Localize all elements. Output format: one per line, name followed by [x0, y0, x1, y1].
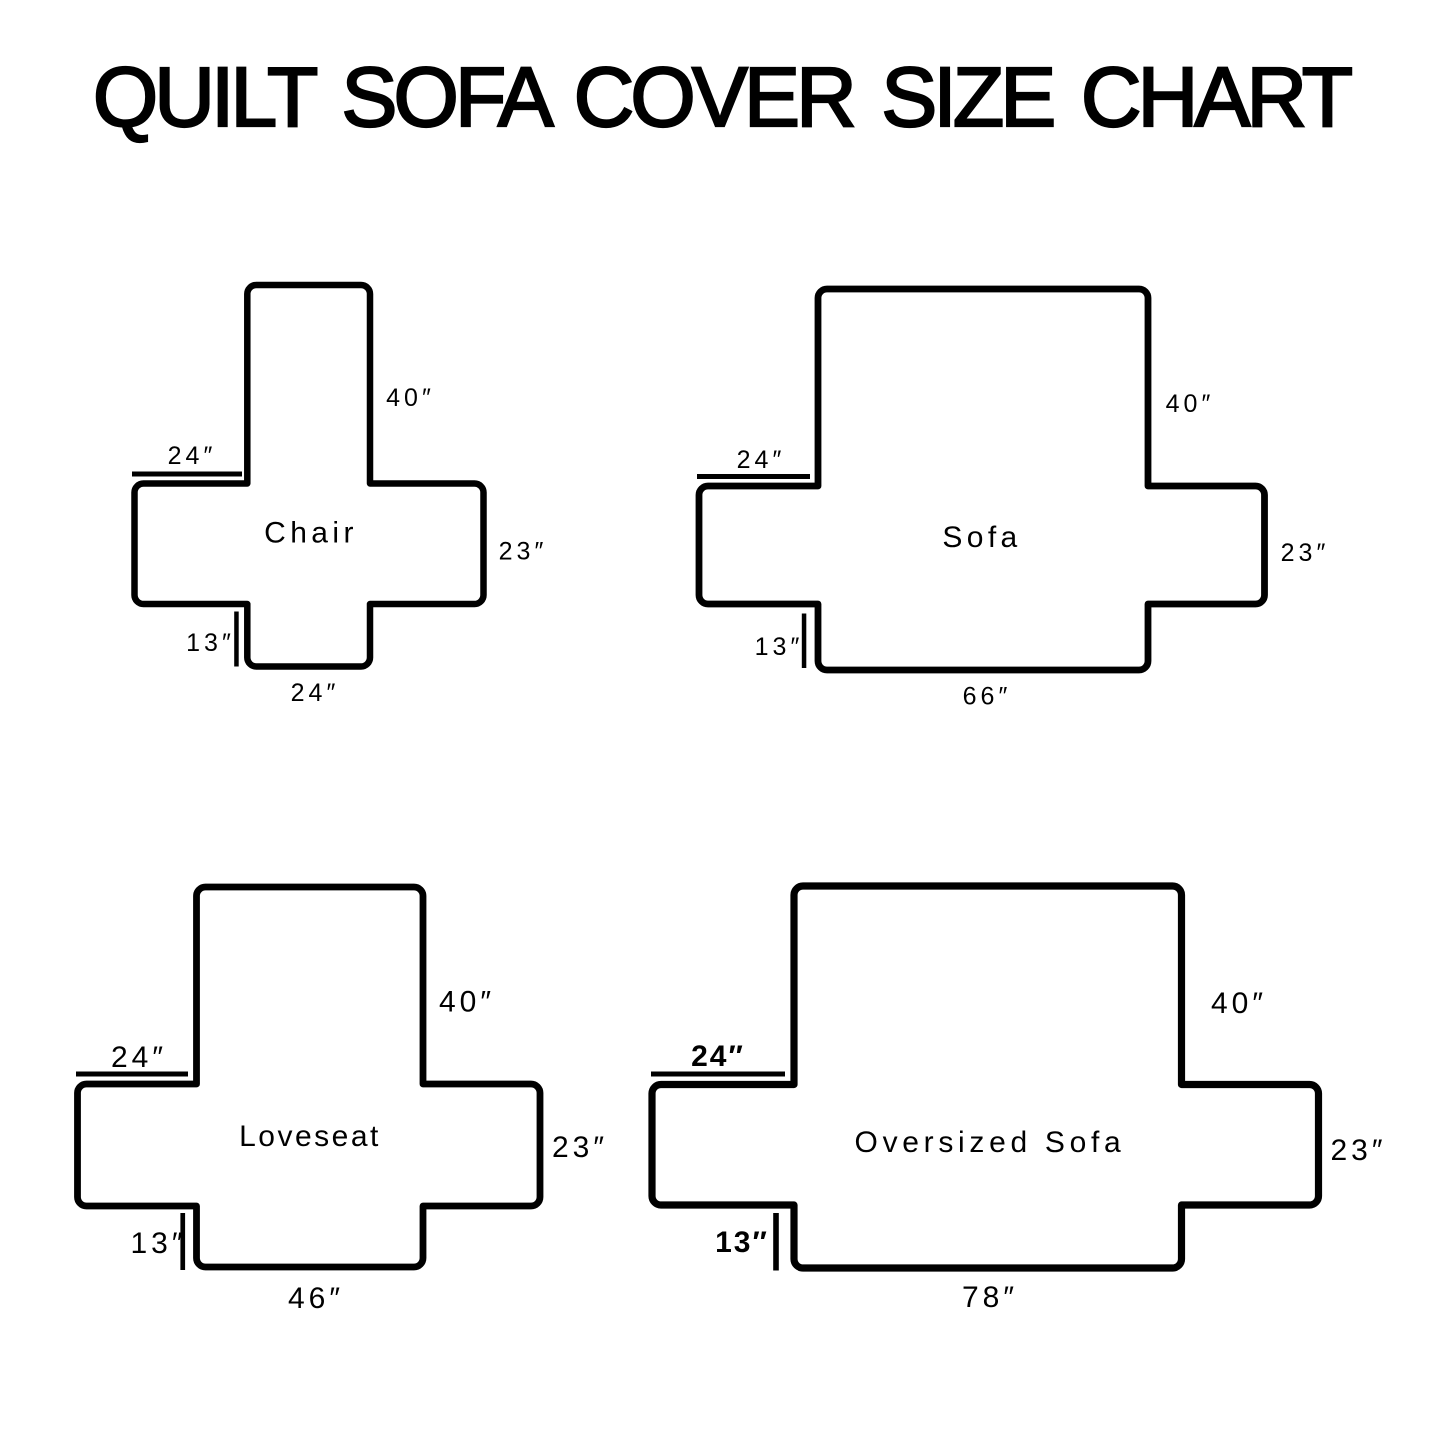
svg-text:24″: 24″ [291, 679, 340, 707]
svg-text:23″: 23″ [1331, 1134, 1387, 1167]
svg-text:24″: 24″ [737, 446, 786, 474]
svg-text:66″: 66″ [963, 683, 1012, 711]
svg-text:Loveseat: Loveseat [239, 1120, 381, 1153]
svg-text:13″: 13″ [715, 1226, 769, 1259]
svg-text:46″: 46″ [288, 1282, 344, 1315]
svg-text:40″: 40″ [1211, 987, 1267, 1020]
svg-text:24″: 24″ [691, 1040, 745, 1073]
svg-text:QUILT SOFA COVER SIZE CHART: QUILT SOFA COVER SIZE CHART [93, 50, 1352, 144]
svg-text:24″: 24″ [111, 1041, 167, 1074]
svg-text:Sofa: Sofa [942, 521, 1021, 554]
svg-text:40″: 40″ [386, 384, 435, 412]
svg-text:Oversized Sofa: Oversized Sofa [855, 1126, 1126, 1159]
svg-text:24″: 24″ [168, 442, 217, 470]
svg-text:23″: 23″ [552, 1131, 608, 1164]
svg-text:13″: 13″ [755, 633, 804, 661]
svg-text:13″: 13″ [131, 1227, 187, 1260]
svg-text:40″: 40″ [439, 986, 495, 1019]
svg-text:23″: 23″ [1281, 539, 1330, 567]
svg-text:23″: 23″ [499, 538, 548, 566]
svg-text:Chair: Chair [264, 517, 358, 550]
svg-text:13″: 13″ [186, 629, 235, 657]
svg-text:78″: 78″ [962, 1281, 1018, 1314]
svg-text:40″: 40″ [1166, 390, 1215, 418]
